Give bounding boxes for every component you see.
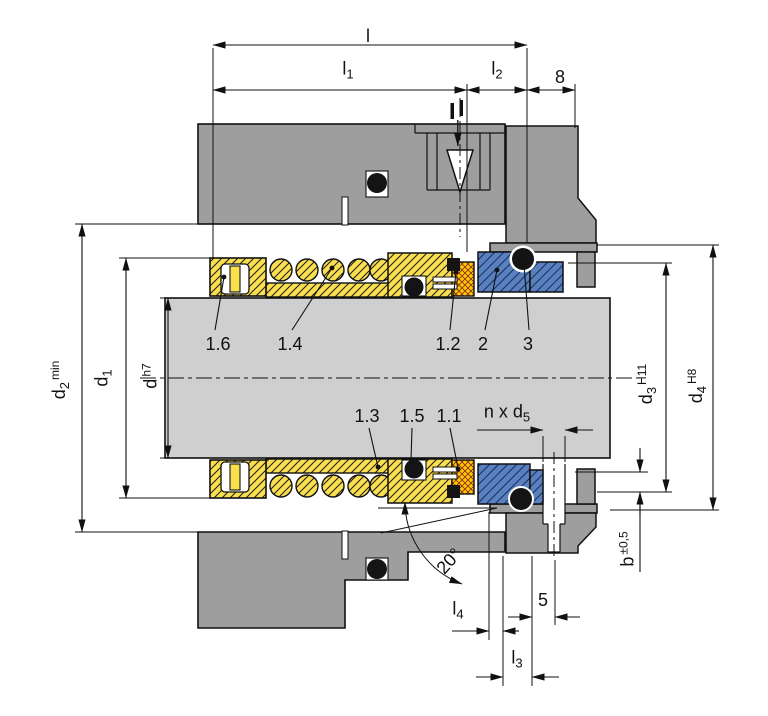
seat-oring-upper — [512, 248, 534, 270]
drive-element-lower — [447, 485, 460, 498]
dim-label-l2: l2 — [491, 60, 502, 81]
seat-oring-lower — [510, 488, 532, 510]
dim-label-n-x-d5: n x d5 — [484, 403, 530, 424]
housing-oring-lower — [367, 559, 387, 579]
housing-upper — [198, 124, 505, 225]
dim-label-d2-min: d2min — [49, 361, 71, 400]
oring-1-5-upper — [405, 278, 424, 297]
spring-coil — [296, 259, 318, 281]
dim-label-l3: l3 — [511, 649, 522, 670]
rotating-unit-upper — [210, 253, 474, 297]
dim-label-d3-h11: d3H11 — [636, 364, 658, 404]
part-label-1-4: 1.4 — [277, 335, 302, 353]
part-label-1-1: 1.1 — [436, 407, 461, 425]
rotating-unit-lower — [210, 459, 474, 503]
dim-label-5: 5 — [538, 591, 548, 609]
dim-label-l1: l1 — [342, 60, 353, 81]
technical-drawing-canvas: l l1 l2 8 d2min d1 dh7 d3H11 d4H8 b±0,5 … — [0, 0, 768, 716]
spring-coil — [270, 475, 292, 497]
drive-element-upper — [447, 258, 460, 271]
spring-coil — [296, 475, 318, 497]
part-label-3: 3 — [523, 335, 533, 353]
spring-coil — [270, 259, 292, 281]
dim-label-l4: l4 — [452, 600, 463, 621]
dim-label-b: b±0,5 — [618, 531, 637, 566]
seal-section-drawing — [0, 0, 768, 716]
part-label-1-2: 1.2 — [435, 335, 460, 353]
dim-label-l: l — [366, 27, 370, 45]
part-label-2: 2 — [478, 335, 488, 353]
dim-label-8: 8 — [555, 68, 565, 86]
part-label-1-6: 1.6 — [205, 335, 230, 353]
dim-label-d1: d1 — [93, 369, 114, 386]
part-label-1-3: 1.3 — [354, 407, 379, 425]
dim-label-d-h7: dh7 — [141, 363, 160, 388]
dim-label-d4-h8: d4H8 — [686, 369, 708, 404]
oring-1-5-lower — [405, 460, 424, 479]
spring-coil — [348, 259, 370, 281]
spring-coil — [322, 475, 344, 497]
part-label-1-5: 1.5 — [399, 407, 424, 425]
spring-coil — [348, 475, 370, 497]
housing-oring-upper — [367, 173, 387, 193]
